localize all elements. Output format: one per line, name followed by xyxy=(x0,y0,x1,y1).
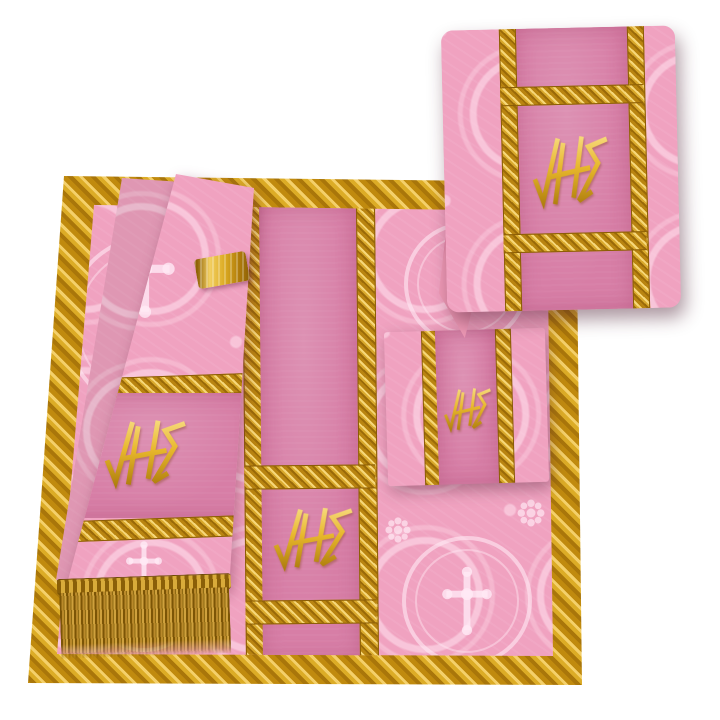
burse-braid-right xyxy=(495,329,515,483)
orphrey-panel xyxy=(259,206,360,661)
maniple-jhs-monogram: JHS xyxy=(100,415,192,493)
maniple: JHS xyxy=(66,172,256,592)
damask-cross-icon xyxy=(441,565,493,637)
maniple-braid-lower xyxy=(60,514,263,542)
orphrey-braid-cross-lower xyxy=(245,599,376,624)
jhs-embroidery-icon xyxy=(100,415,192,493)
burse-jhs-monogram: JHS xyxy=(440,384,495,435)
damask-rosette-icon xyxy=(384,516,412,544)
damask-cross-icon xyxy=(114,234,176,320)
damask-cross-medallion xyxy=(402,536,532,666)
veil-braid-cross-lower xyxy=(503,231,646,253)
chasuble-orphrey-column: JHS xyxy=(242,205,377,660)
veil-jhs-monogram: JHS xyxy=(527,130,615,214)
orphrey-jhs-monogram: JHS xyxy=(269,503,360,576)
orphrey-braid-cross-upper xyxy=(244,464,375,489)
damask-rosette-icon xyxy=(516,498,546,528)
orphrey-braid-right xyxy=(356,205,379,659)
maniple-fringe xyxy=(57,573,234,659)
fringe-strands xyxy=(59,587,231,659)
jhs-embroidery-icon xyxy=(527,130,615,214)
veil-braid-cross-upper xyxy=(500,84,643,106)
burse: JHS xyxy=(384,328,549,486)
product-photo: JHS JHS xyxy=(0,0,720,720)
jhs-embroidery-icon xyxy=(440,384,495,435)
jhs-embroidery-icon xyxy=(269,503,360,576)
chalice-veil: JHS xyxy=(441,25,681,312)
